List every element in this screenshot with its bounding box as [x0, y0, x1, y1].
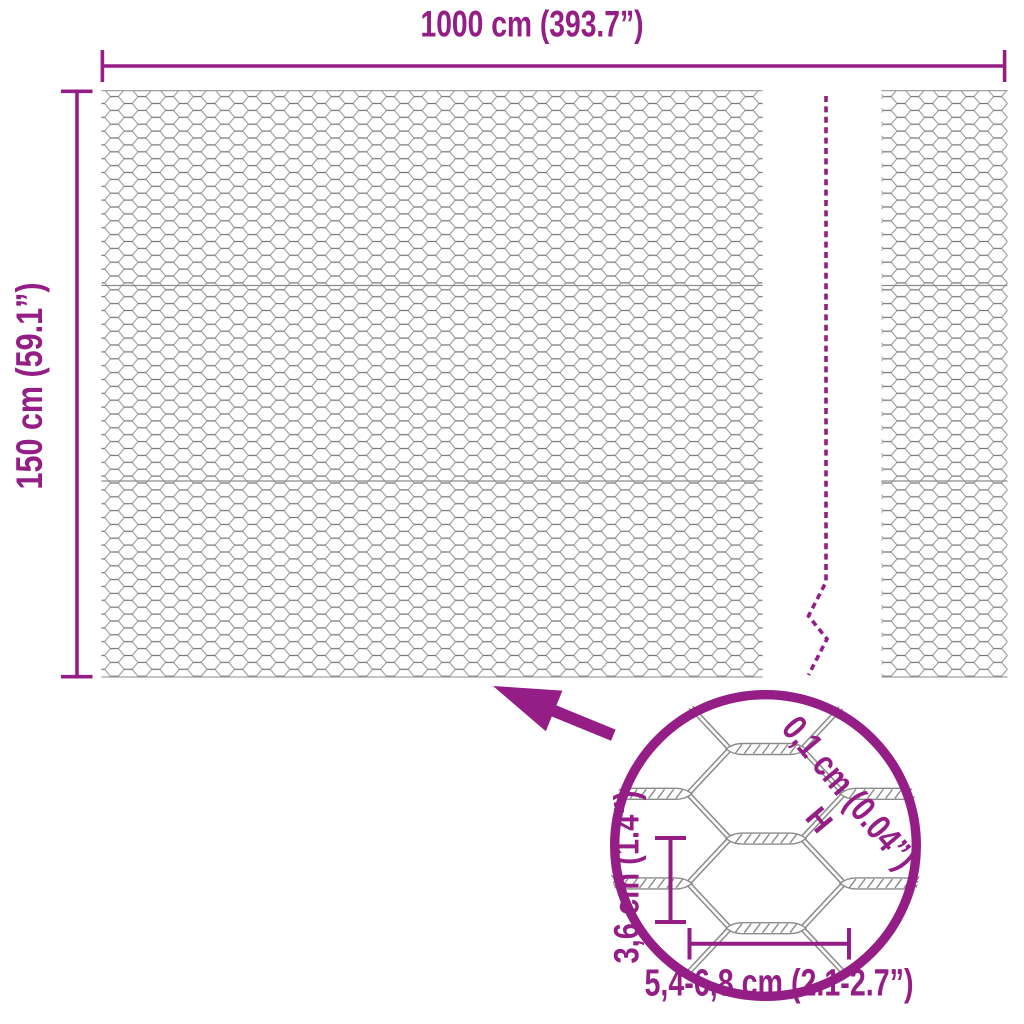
svg-text:5,4-6,8 cm (2.1-2.7”): 5,4-6,8 cm (2.1-2.7”): [645, 963, 914, 1005]
svg-text:150 cm (59.1”): 150 cm (59.1”): [9, 283, 50, 490]
svg-text:3,6 cm (1.4”): 3,6 cm (1.4”): [608, 791, 647, 964]
svg-text:1000 cm (393.7”): 1000 cm (393.7”): [421, 3, 644, 44]
